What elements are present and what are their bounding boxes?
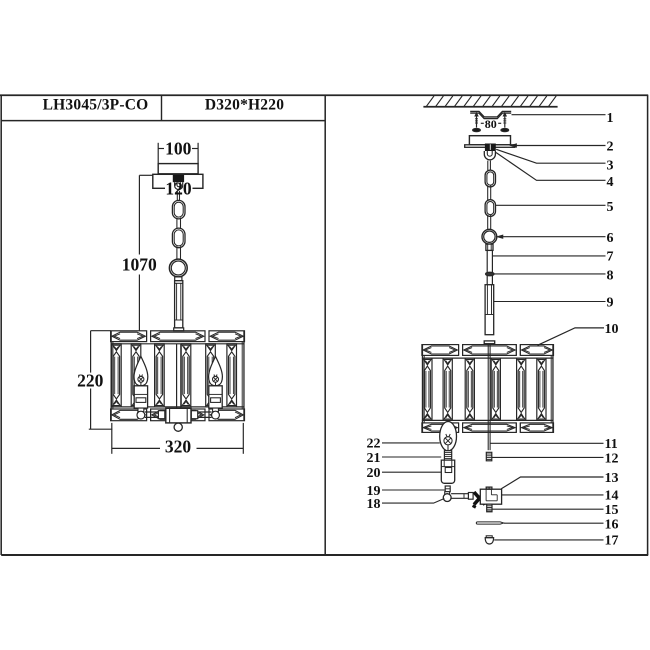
svg-text:LH3045/3P-CO: LH3045/3P-CO	[43, 97, 149, 114]
svg-text:12: 12	[605, 452, 619, 467]
svg-text:11: 11	[605, 437, 618, 452]
svg-text:9: 9	[607, 296, 614, 311]
svg-text:4: 4	[607, 175, 614, 190]
svg-text:14: 14	[605, 489, 619, 504]
svg-text:100: 100	[165, 139, 192, 159]
svg-text:22: 22	[367, 437, 381, 452]
svg-text:8: 8	[607, 268, 614, 283]
svg-text:17: 17	[605, 534, 619, 549]
svg-text:13: 13	[605, 471, 619, 486]
svg-text:120: 120	[165, 179, 192, 199]
svg-text:320: 320	[165, 437, 192, 457]
svg-text:7: 7	[607, 249, 614, 264]
svg-text:220: 220	[77, 371, 104, 391]
svg-text:20: 20	[367, 466, 381, 481]
svg-text:21: 21	[367, 451, 381, 466]
svg-text:10: 10	[605, 322, 619, 337]
svg-text:2: 2	[607, 139, 614, 154]
svg-text:D320*H220: D320*H220	[205, 97, 284, 114]
svg-text:18: 18	[367, 497, 381, 512]
svg-text:80: 80	[485, 117, 497, 131]
svg-text:1070: 1070	[122, 255, 157, 275]
svg-text:1: 1	[607, 111, 614, 126]
svg-text:3: 3	[607, 158, 614, 173]
svg-text:15: 15	[605, 503, 619, 518]
svg-text:16: 16	[605, 518, 619, 533]
svg-text:5: 5	[607, 200, 614, 215]
svg-text:6: 6	[607, 231, 614, 246]
